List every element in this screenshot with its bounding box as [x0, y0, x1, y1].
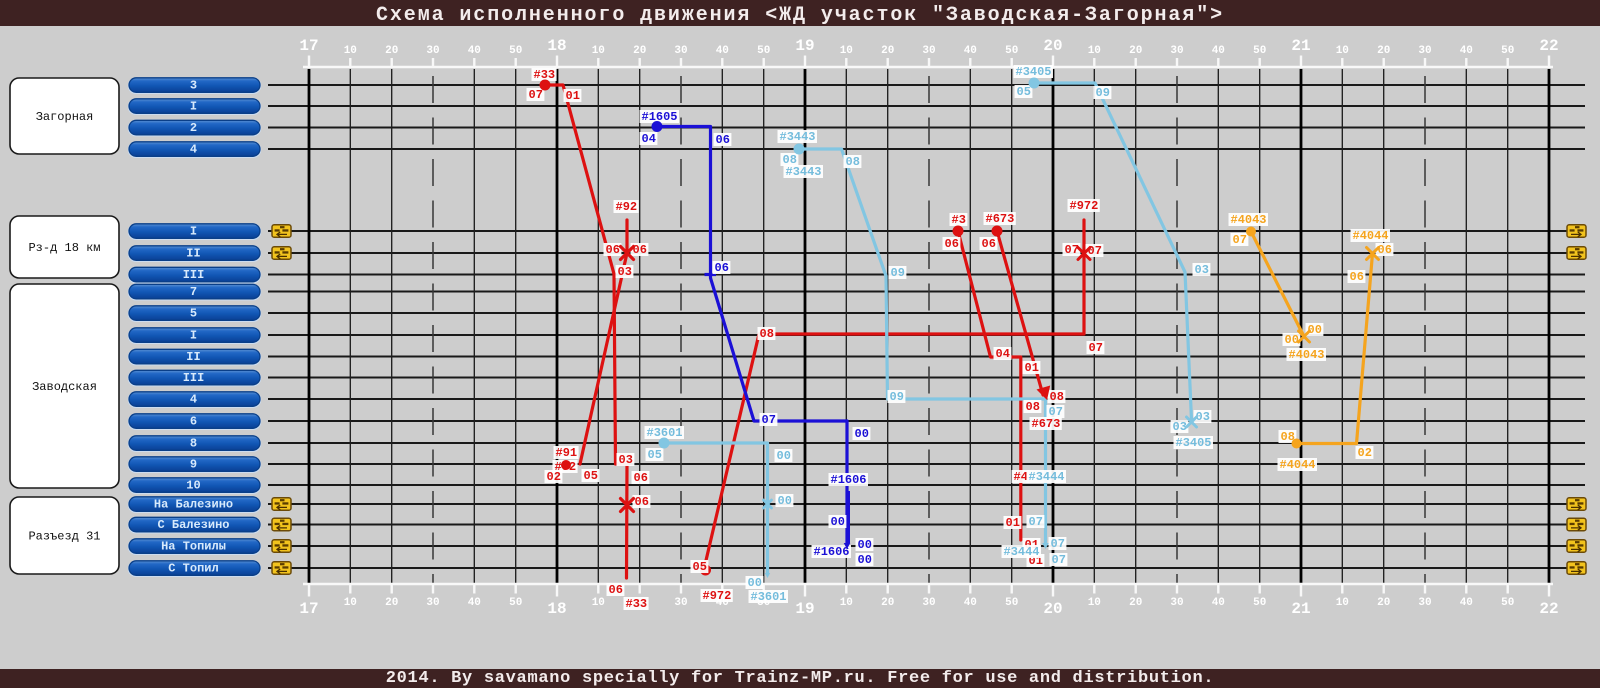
- svg-text:40: 40: [468, 597, 481, 609]
- svg-text:00: 00: [777, 449, 791, 463]
- svg-text:8: 8: [190, 437, 197, 451]
- svg-text:10: 10: [1336, 45, 1349, 57]
- svg-text:#3: #3: [952, 213, 966, 227]
- svg-text:3: 3: [190, 79, 197, 93]
- svg-text:III: III: [183, 268, 205, 282]
- svg-text:10: 10: [1088, 45, 1101, 57]
- svg-text:06: 06: [716, 133, 730, 147]
- svg-text:III: III: [183, 371, 205, 385]
- svg-text:09: 09: [890, 390, 904, 404]
- svg-text:06: 06: [633, 243, 647, 257]
- svg-text:40: 40: [716, 45, 729, 57]
- svg-text:18: 18: [547, 600, 566, 618]
- svg-text:50: 50: [509, 45, 522, 57]
- svg-text:5: 5: [190, 307, 197, 321]
- svg-text:30: 30: [674, 597, 687, 609]
- svg-text:00: 00: [855, 427, 869, 441]
- svg-text:05: 05: [1017, 85, 1031, 99]
- svg-text:#3443: #3443: [780, 130, 816, 144]
- svg-text:50: 50: [1253, 45, 1266, 57]
- svg-text:20: 20: [385, 597, 398, 609]
- svg-text:30: 30: [1170, 597, 1183, 609]
- svg-text:С Топил: С Топил: [168, 562, 218, 576]
- svg-text:03: 03: [1173, 420, 1187, 434]
- svg-text:30: 30: [674, 45, 687, 57]
- svg-text:#673: #673: [986, 212, 1015, 226]
- svg-text:30: 30: [922, 597, 935, 609]
- svg-text:50: 50: [1253, 597, 1266, 609]
- svg-text:07: 07: [1049, 405, 1063, 419]
- svg-text:00: 00: [748, 576, 762, 590]
- svg-text:9: 9: [190, 458, 197, 472]
- svg-text:На Топилы: На Топилы: [161, 540, 226, 554]
- svg-text:#3601: #3601: [751, 590, 787, 604]
- svg-text:#1606: #1606: [814, 545, 850, 559]
- svg-text:10: 10: [592, 597, 605, 609]
- svg-text:05: 05: [693, 560, 707, 574]
- svg-text:Загорная: Загорная: [36, 110, 94, 124]
- svg-text:08: 08: [1050, 390, 1064, 404]
- svg-text:#3444: #3444: [1004, 545, 1040, 559]
- svg-text:#3444: #3444: [1029, 470, 1065, 484]
- svg-text:20: 20: [1377, 597, 1390, 609]
- svg-text:22: 22: [1539, 600, 1558, 618]
- svg-text:50: 50: [1501, 597, 1514, 609]
- svg-text:30: 30: [426, 45, 439, 57]
- svg-text:04: 04: [642, 132, 656, 146]
- svg-text:2014. By savamano specially fo: 2014. By savamano specially for Trainz-M…: [386, 669, 1215, 688]
- svg-text:#3443: #3443: [786, 165, 822, 179]
- svg-text:50: 50: [509, 597, 522, 609]
- svg-text:#4043: #4043: [1289, 348, 1325, 362]
- svg-text:06: 06: [1350, 270, 1364, 284]
- svg-text:20: 20: [1377, 45, 1390, 57]
- svg-text:С Балезино: С Балезино: [157, 518, 229, 532]
- svg-text:10: 10: [840, 597, 853, 609]
- svg-text:#91: #91: [556, 446, 578, 460]
- svg-text:7: 7: [190, 285, 197, 299]
- svg-text:07: 07: [762, 413, 776, 427]
- svg-text:01: 01: [1006, 516, 1020, 530]
- svg-text:20: 20: [633, 45, 646, 57]
- svg-text:10: 10: [840, 45, 853, 57]
- svg-text:02: 02: [1358, 446, 1372, 460]
- svg-text:07: 07: [1233, 233, 1247, 247]
- svg-text:30: 30: [426, 597, 439, 609]
- svg-text:#1606: #1606: [831, 473, 867, 487]
- svg-text:00: 00: [858, 553, 872, 567]
- svg-text:Схема исполненного движения <Ж: Схема исполненного движения <ЖД участок …: [376, 4, 1224, 27]
- svg-text:06: 06: [945, 237, 959, 251]
- svg-text:10: 10: [344, 45, 357, 57]
- svg-text:30: 30: [1170, 45, 1183, 57]
- svg-text:06: 06: [609, 583, 623, 597]
- svg-text:10: 10: [592, 45, 605, 57]
- svg-text:17: 17: [299, 600, 318, 618]
- svg-text:50: 50: [757, 45, 770, 57]
- svg-text:04: 04: [996, 347, 1010, 361]
- svg-text:20: 20: [881, 45, 894, 57]
- svg-text:20: 20: [1129, 597, 1142, 609]
- svg-text:40: 40: [468, 45, 481, 57]
- svg-text:00: 00: [831, 515, 845, 529]
- svg-text:19: 19: [795, 600, 814, 618]
- svg-text:07: 07: [1051, 537, 1065, 551]
- svg-text:06: 06: [982, 237, 996, 251]
- svg-text:10: 10: [1336, 597, 1349, 609]
- svg-text:На Балезино: На Балезино: [154, 498, 233, 512]
- svg-text:30: 30: [1418, 597, 1431, 609]
- svg-text:#4044: #4044: [1353, 229, 1389, 243]
- svg-text:#92: #92: [616, 200, 638, 214]
- svg-text:50: 50: [1501, 45, 1514, 57]
- svg-text:20: 20: [881, 597, 894, 609]
- svg-text:40: 40: [1460, 597, 1473, 609]
- svg-text:50: 50: [1005, 597, 1018, 609]
- svg-text:19: 19: [795, 37, 814, 55]
- svg-text:#4: #4: [1014, 470, 1028, 484]
- svg-text:20: 20: [1129, 45, 1142, 57]
- svg-text:#4043: #4043: [1231, 213, 1267, 227]
- svg-text:II: II: [186, 247, 200, 261]
- svg-text:Разъезд 31: Разъезд 31: [28, 530, 100, 544]
- svg-text:4: 4: [190, 393, 197, 407]
- svg-text:20: 20: [1043, 600, 1062, 618]
- svg-text:18: 18: [547, 37, 566, 55]
- svg-text:10: 10: [1088, 597, 1101, 609]
- svg-text:07: 07: [1029, 515, 1043, 529]
- svg-text:#673: #673: [1032, 417, 1061, 431]
- svg-text:21: 21: [1291, 600, 1310, 618]
- svg-text:00: 00: [1285, 333, 1299, 347]
- svg-text:02: 02: [547, 470, 561, 484]
- svg-text:Заводская: Заводская: [32, 380, 97, 394]
- svg-text:30: 30: [1418, 45, 1431, 57]
- svg-text:21: 21: [1291, 37, 1310, 55]
- svg-text:I: I: [190, 329, 197, 343]
- svg-text:06: 06: [1378, 243, 1392, 257]
- svg-text:20: 20: [1043, 37, 1062, 55]
- svg-text:06: 06: [715, 261, 729, 275]
- svg-text:40: 40: [964, 45, 977, 57]
- svg-text:08: 08: [760, 327, 774, 341]
- svg-text:#972: #972: [1070, 199, 1099, 213]
- svg-text:I: I: [190, 100, 197, 114]
- svg-text:30: 30: [922, 45, 935, 57]
- svg-text:17: 17: [299, 37, 318, 55]
- svg-text:10: 10: [186, 479, 200, 493]
- svg-text:09: 09: [1096, 86, 1110, 100]
- svg-text:40: 40: [964, 597, 977, 609]
- svg-text:22: 22: [1539, 37, 1558, 55]
- svg-text:03: 03: [618, 265, 632, 279]
- svg-text:07: 07: [529, 88, 543, 102]
- svg-text:06: 06: [635, 495, 649, 509]
- svg-text:05: 05: [648, 448, 662, 462]
- svg-text:6: 6: [190, 415, 197, 429]
- svg-text:07: 07: [1052, 553, 1066, 567]
- svg-text:06: 06: [606, 243, 620, 257]
- svg-text:08: 08: [1026, 400, 1040, 414]
- svg-text:01: 01: [1025, 361, 1039, 375]
- svg-text:#3405: #3405: [1016, 65, 1052, 79]
- svg-text:01: 01: [566, 89, 580, 103]
- svg-text:40: 40: [1212, 45, 1225, 57]
- svg-text:4: 4: [190, 143, 197, 157]
- svg-text:40: 40: [1460, 45, 1473, 57]
- svg-text:00: 00: [778, 494, 792, 508]
- svg-text:03: 03: [1195, 263, 1209, 277]
- svg-text:40: 40: [1212, 597, 1225, 609]
- svg-text:II: II: [186, 350, 200, 364]
- svg-text:#972: #972: [703, 589, 732, 603]
- svg-text:08: 08: [846, 155, 860, 169]
- svg-text:00: 00: [858, 538, 872, 552]
- svg-text:Рз-д 18 км: Рз-д 18 км: [28, 241, 100, 255]
- svg-text:50: 50: [1005, 45, 1018, 57]
- svg-text:#33: #33: [626, 597, 648, 611]
- svg-text:09: 09: [891, 266, 905, 280]
- svg-text:03: 03: [619, 453, 633, 467]
- svg-text:05: 05: [584, 469, 598, 483]
- svg-text:07: 07: [1065, 243, 1079, 257]
- svg-text:20: 20: [385, 45, 398, 57]
- svg-text:10: 10: [344, 597, 357, 609]
- svg-text:I: I: [190, 225, 197, 239]
- svg-text:2: 2: [190, 121, 197, 135]
- svg-text:#3405: #3405: [1176, 436, 1212, 450]
- svg-text:06: 06: [634, 471, 648, 485]
- svg-text:#4044: #4044: [1280, 458, 1316, 472]
- svg-text:07: 07: [1089, 341, 1103, 355]
